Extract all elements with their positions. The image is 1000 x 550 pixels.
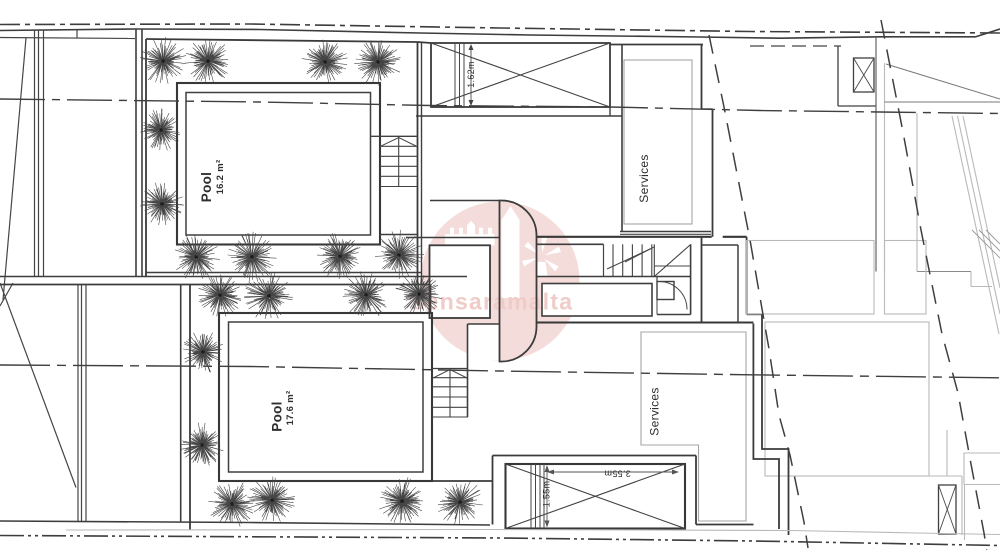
svg-text:Pool: Pool	[199, 172, 214, 202]
svg-text:Services: Services	[648, 387, 662, 435]
svg-text:3.55m: 3.55m	[604, 469, 631, 479]
svg-text:Services: Services	[637, 154, 651, 202]
svg-text:1.62m: 1.62m	[466, 61, 476, 88]
svg-text:Pool: Pool	[270, 401, 285, 431]
svg-text:17.6 m²: 17.6 m²	[285, 391, 296, 426]
svg-text:sensaramalta: sensaramalta	[412, 289, 573, 315]
svg-text:1.55m: 1.55m	[542, 481, 552, 508]
svg-text:16.2 m²: 16.2 m²	[215, 160, 226, 195]
